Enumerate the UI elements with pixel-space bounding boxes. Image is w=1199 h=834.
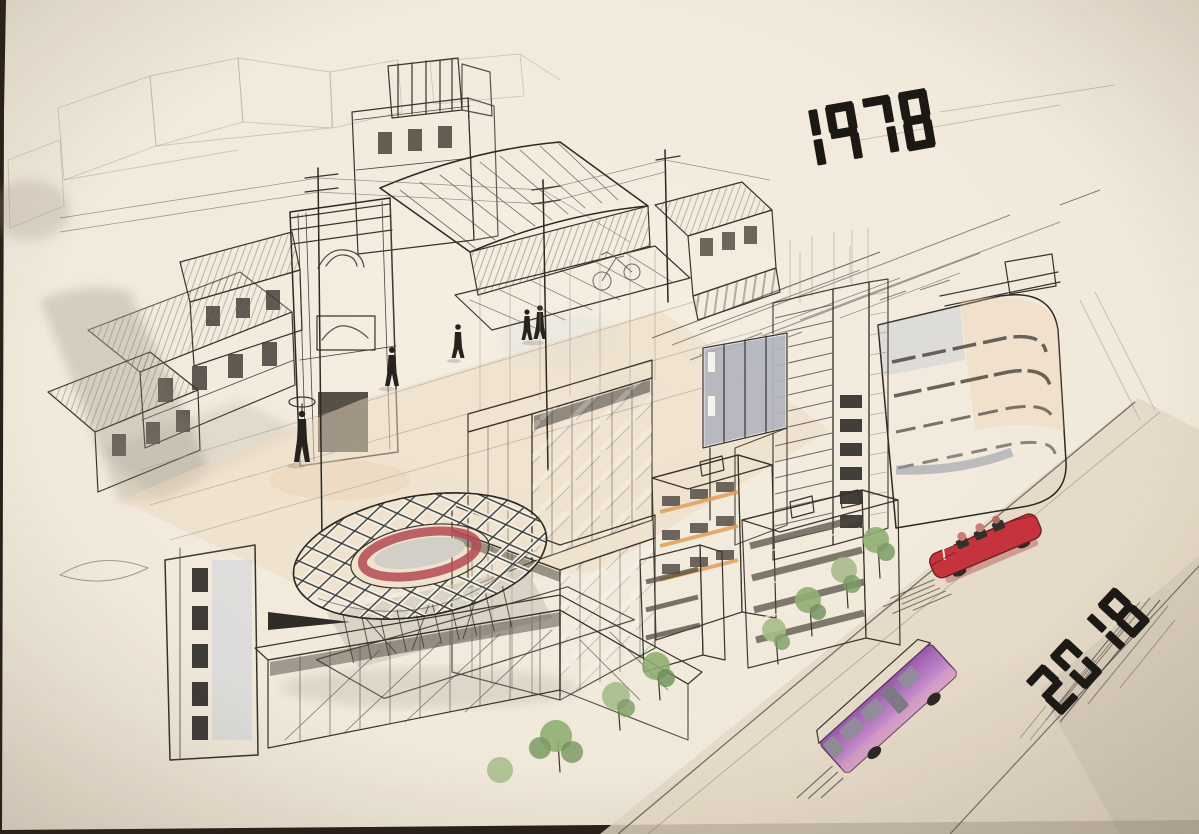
artwork-photo xyxy=(0,0,1199,834)
photo-vignette xyxy=(0,0,1199,834)
sketch-canvas xyxy=(0,0,1199,834)
